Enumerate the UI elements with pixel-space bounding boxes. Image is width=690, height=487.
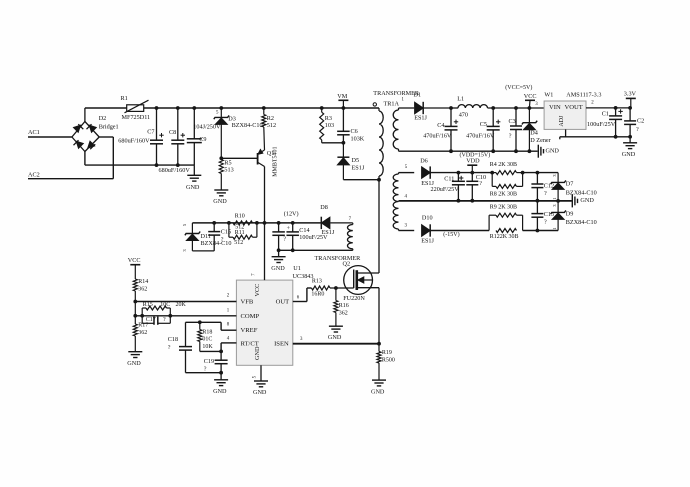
svg-text:D6: D6 [420, 158, 428, 165]
svg-text:512: 512 [267, 122, 276, 129]
svg-text:GND: GND [546, 147, 560, 154]
svg-text:103K: 103K [351, 135, 365, 142]
svg-text:OUT: OUT [276, 298, 290, 305]
svg-text:R8 2K 30B: R8 2K 30B [490, 191, 517, 197]
svg-text:362: 362 [339, 310, 348, 316]
svg-text:COMP: COMP [241, 313, 260, 320]
svg-text:AC2: AC2 [28, 171, 40, 178]
svg-text:GND: GND [253, 389, 267, 396]
svg-text:D10: D10 [422, 214, 433, 221]
svg-text:BZX84-C10: BZX84-C10 [232, 122, 263, 129]
svg-text:Q2: Q2 [343, 260, 351, 267]
svg-text:ES1J: ES1J [414, 115, 427, 122]
svg-text:GND: GND [580, 197, 594, 204]
svg-text:D11: D11 [201, 233, 211, 240]
svg-text:UC3843: UC3843 [293, 273, 314, 280]
svg-text:GND: GND [127, 360, 141, 367]
svg-text:R19: R19 [382, 350, 392, 356]
svg-text:R13: R13 [312, 279, 322, 285]
svg-text:ADJ: ADJ [559, 115, 565, 127]
svg-text:?: ? [544, 190, 547, 197]
svg-text:C3: C3 [509, 118, 516, 125]
svg-text:R17: R17 [138, 322, 148, 328]
svg-text:C9: C9 [199, 136, 206, 143]
svg-text:VOUT: VOUT [565, 104, 583, 111]
svg-text:MF725D11: MF725D11 [122, 114, 151, 121]
svg-text:D7: D7 [566, 180, 574, 187]
svg-text:?: ? [636, 126, 639, 133]
svg-text:362: 362 [138, 286, 147, 292]
svg-text:?: ? [479, 180, 482, 187]
svg-text:100uF/25V: 100uF/25V [587, 121, 616, 128]
svg-text:BZX84-C10: BZX84-C10 [201, 240, 232, 247]
svg-text:C4: C4 [437, 122, 444, 129]
svg-text:D1: D1 [414, 92, 422, 99]
svg-text:362: 362 [138, 330, 147, 336]
svg-text:C5: C5 [480, 121, 487, 128]
svg-text:VCC: VCC [524, 93, 537, 100]
svg-text:FU220N: FU220N [343, 295, 365, 302]
svg-text:GND: GND [371, 388, 385, 395]
svg-text:3.3V: 3.3V [624, 91, 637, 98]
svg-text:R500: R500 [382, 357, 395, 363]
svg-text:C14: C14 [299, 227, 309, 234]
svg-text:C8: C8 [169, 129, 176, 136]
svg-text:?: ? [283, 235, 286, 242]
svg-text:(-15V): (-15V) [443, 231, 459, 238]
svg-text:R3: R3 [325, 115, 332, 122]
svg-text:GND: GND [254, 346, 261, 360]
svg-text:?: ? [168, 344, 171, 351]
svg-text:R5: R5 [224, 160, 231, 167]
svg-text:GND: GND [213, 198, 227, 205]
svg-text:(VCC=5V): (VCC=5V) [505, 84, 532, 91]
svg-text:(12V): (12V) [284, 211, 299, 218]
svg-text:Bridge1: Bridge1 [99, 124, 119, 131]
svg-text:220uF/25V: 220uF/25V [431, 186, 460, 193]
svg-text:680uF/160V: 680uF/160V [159, 167, 191, 174]
svg-text:C1: C1 [602, 111, 609, 118]
svg-text:VREF: VREF [241, 327, 258, 334]
svg-text:01C: 01C [202, 337, 212, 343]
svg-text:C11: C11 [444, 176, 454, 183]
svg-text:RT/CT: RT/CT [241, 340, 259, 347]
svg-text:VCC: VCC [128, 257, 141, 264]
svg-text:TRANSFORMER: TRANSFORMER [315, 255, 362, 262]
svg-text:R122K 30B: R122K 30B [490, 234, 519, 240]
svg-text:?: ? [509, 133, 512, 140]
svg-text:C18: C18 [168, 336, 178, 343]
svg-text:L1: L1 [457, 95, 464, 102]
svg-text:GND: GND [213, 388, 227, 395]
svg-text:TR1A: TR1A [384, 100, 400, 107]
svg-text:VDD: VDD [466, 158, 480, 165]
svg-text:MMBT5401: MMBT5401 [273, 146, 279, 176]
svg-text:513: 513 [224, 167, 233, 174]
svg-text:470: 470 [459, 111, 468, 118]
svg-text:C15: C15 [221, 228, 231, 235]
svg-text:10K: 10K [202, 344, 213, 350]
svg-text:ISEN: ISEN [274, 341, 289, 348]
svg-text:GND: GND [186, 184, 200, 191]
svg-text:R2: R2 [267, 115, 274, 122]
svg-text:AC1: AC1 [28, 129, 40, 136]
svg-text:D8: D8 [320, 204, 328, 211]
svg-text:?: ? [204, 366, 207, 373]
svg-text:R16: R16 [339, 303, 349, 309]
svg-text:D Zener: D Zener [530, 137, 550, 144]
svg-text:BZX84-C10: BZX84-C10 [566, 190, 597, 197]
svg-text:470uF/16V: 470uF/16V [423, 132, 452, 139]
svg-text:C19: C19 [204, 358, 214, 365]
svg-text:103: 103 [325, 122, 334, 129]
svg-text:R11: R11 [235, 230, 245, 236]
svg-text:U1: U1 [293, 265, 301, 272]
svg-text:BZX84-C10: BZX84-C10 [566, 219, 597, 226]
svg-text:680uF/160V: 680uF/160V [118, 137, 150, 144]
svg-text:VFB: VFB [241, 298, 254, 305]
svg-text:AMS1117-3.3: AMS1117-3.3 [566, 92, 601, 99]
svg-text:R10: R10 [235, 214, 245, 220]
svg-text:C2: C2 [637, 118, 644, 125]
svg-text:D2: D2 [99, 115, 107, 122]
svg-text:470uF/16V: 470uF/16V [466, 132, 495, 139]
svg-text:ES1J: ES1J [421, 238, 434, 245]
svg-text:GND: GND [271, 265, 285, 272]
svg-text:R14: R14 [138, 279, 148, 285]
svg-text:VM: VM [337, 93, 347, 100]
svg-text:R9 2K 30B: R9 2K 30B [490, 205, 517, 211]
svg-text:GND: GND [328, 334, 342, 341]
svg-text:20K: 20K [176, 302, 187, 308]
svg-text:VCC: VCC [254, 284, 261, 297]
svg-text:R1: R1 [121, 95, 128, 102]
svg-text:512: 512 [234, 240, 243, 246]
svg-text:C6: C6 [351, 128, 358, 135]
svg-text:R18: R18 [202, 329, 212, 335]
svg-text:?: ? [221, 236, 224, 243]
svg-text:W1: W1 [544, 92, 553, 99]
svg-text:D4: D4 [530, 130, 538, 137]
svg-text:VIN: VIN [549, 104, 561, 111]
svg-text:R4 2K 30B: R4 2K 30B [490, 162, 517, 168]
svg-text:?: ? [544, 218, 547, 225]
svg-text:R15: R15 [143, 302, 153, 308]
svg-text:ES1J: ES1J [352, 164, 365, 171]
svg-text:100uF/25V: 100uF/25V [299, 234, 328, 241]
svg-text:D5: D5 [352, 157, 360, 164]
svg-text:16R0: 16R0 [311, 292, 324, 298]
svg-text:GND: GND [622, 151, 636, 158]
svg-text:D9: D9 [566, 210, 574, 217]
svg-text:C7: C7 [147, 128, 154, 135]
svg-text:10C: 10C [160, 302, 170, 308]
svg-text:?: ? [163, 317, 166, 323]
